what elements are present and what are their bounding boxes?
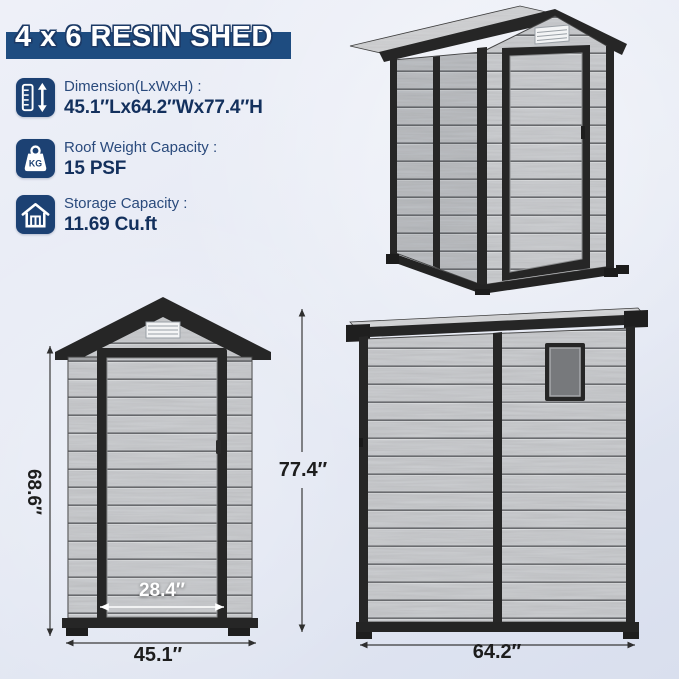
front-base	[62, 618, 258, 636]
storage-house-icon	[16, 195, 55, 234]
shed-3d-door	[502, 45, 590, 281]
kg-badge: KG	[29, 158, 42, 168]
roof-weight-kg-icon: KG	[16, 139, 55, 178]
spec-label-dimension: Dimension(LxWxH) :	[64, 78, 263, 96]
spec-row-storage: Storage Capacity : 11.69 Cu.ft	[16, 195, 187, 236]
front-width-label: 45.1″	[116, 644, 200, 667]
shed-side-view	[340, 295, 670, 679]
shed-3d-door-handle	[581, 126, 585, 139]
page-title: 4 x 6 RESIN SHED	[15, 21, 273, 54]
side-window	[545, 343, 585, 401]
front-vent	[146, 322, 180, 338]
spec-label-storage: Storage Capacity :	[64, 195, 187, 213]
side-hinge	[359, 438, 363, 447]
total-height-label: 77.4″	[275, 459, 331, 482]
side-width-label: 64.2″	[455, 641, 539, 664]
infographic-canvas: 4 x 6 RESIN SHED Dimension(LxWxH) : 45.1…	[0, 0, 679, 679]
spec-label-roof-weight: Roof Weight Capacity :	[64, 139, 217, 157]
side-base	[356, 622, 639, 639]
spec-value-dimension: 45.1″Lx64.2″Wx77.4″H	[64, 97, 263, 119]
shed-3d-vent	[535, 25, 569, 44]
spec-row-roof-weight: KG Roof Weight Capacity : 15 PSF	[16, 139, 217, 180]
height-dimension-icon	[16, 78, 55, 117]
front-door-handle	[216, 440, 221, 454]
spec-row-dimension: Dimension(LxWxH) : 45.1″Lx64.2″Wx77.4″H	[16, 78, 263, 119]
shed-front-view	[0, 290, 340, 679]
wall-height-label: 68.6″	[18, 447, 44, 537]
shed-3d-view	[330, 0, 679, 295]
door-width-label: 28.4″	[127, 580, 197, 602]
spec-value-storage: 11.69 Cu.ft	[64, 214, 187, 236]
spec-value-roof-weight: 15 PSF	[64, 158, 217, 180]
